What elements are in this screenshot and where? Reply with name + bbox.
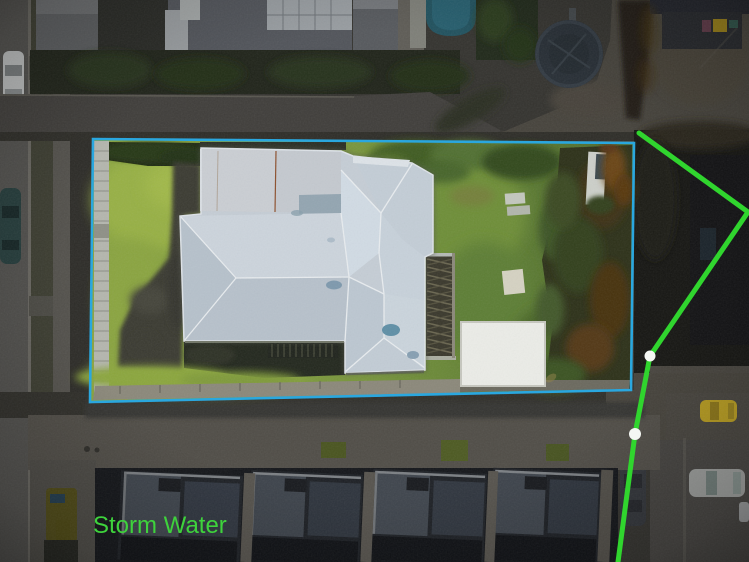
svg-text:Storm Water: Storm Water [93,512,227,539]
